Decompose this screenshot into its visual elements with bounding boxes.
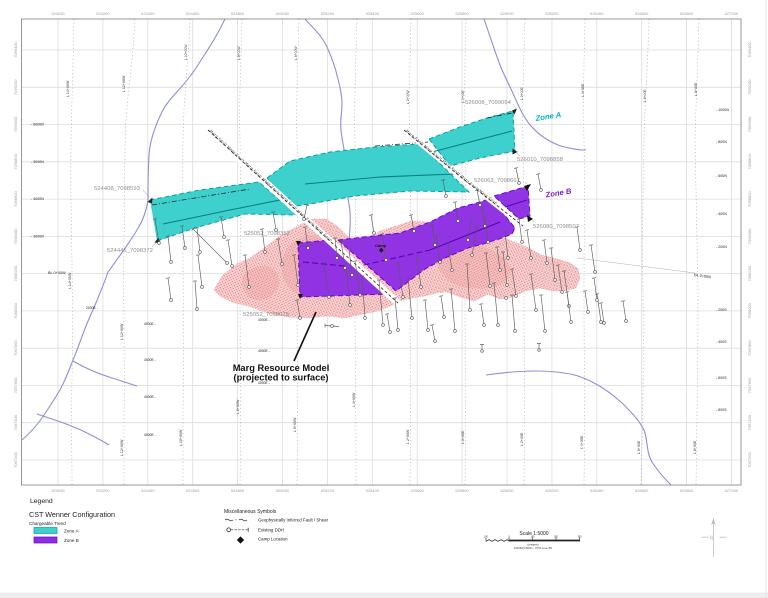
svg-text:Camp Location: Camp Location xyxy=(258,537,288,542)
svg-text:L 6+00E: L 6+00E xyxy=(643,89,647,102)
svg-text:7098000: 7098000 xyxy=(13,302,18,318)
svg-text:- 600S: - 600S xyxy=(716,376,727,380)
svg-text:525000: 525000 xyxy=(276,488,290,493)
svg-text:7097800: 7097800 xyxy=(747,340,752,356)
svg-text:526400: 526400 xyxy=(590,488,604,493)
svg-text:L 8+00E: L 8+00E xyxy=(693,440,697,454)
svg-text:526800: 526800 xyxy=(680,488,694,493)
svg-text:525600: 525600 xyxy=(411,11,425,16)
svg-text:526080_7098507: 526080_7098507 xyxy=(533,224,579,230)
svg-text:L 6+00W: L 6+00W xyxy=(294,46,298,60)
svg-text:L 0+00E: L 0+00E xyxy=(461,90,465,103)
svg-text:Geophysically Inferred Fault /: Geophysically Inferred Fault / Shear xyxy=(258,518,329,523)
svg-text:7098800: 7098800 xyxy=(13,153,18,169)
svg-text:L 8+00W: L 8+00W xyxy=(237,46,241,60)
svg-text:- 400N: - 400N xyxy=(716,212,727,216)
svg-text:524200: 524200 xyxy=(96,11,110,16)
svg-text:CST Wenner Configuration: CST Wenner Configuration xyxy=(29,510,115,519)
svg-text:4000E -: 4000E - xyxy=(144,433,156,437)
svg-text:Zone A: Zone A xyxy=(64,529,79,534)
svg-text:7097200: 7097200 xyxy=(747,451,752,467)
svg-text:L 4+00E: L 4+00E xyxy=(581,83,585,97)
svg-text:- 3000N: - 3000N xyxy=(31,234,44,238)
svg-text:7098400: 7098400 xyxy=(747,228,752,244)
svg-text:525600: 525600 xyxy=(411,488,425,493)
svg-text:7098800: 7098800 xyxy=(747,153,752,169)
svg-text:4000E -: 4000E - xyxy=(258,349,270,353)
svg-text:526008_7099064: 526008_7099064 xyxy=(465,100,512,106)
svg-text:L 0+00E: L 0+00E xyxy=(461,430,465,444)
svg-text:7098200: 7098200 xyxy=(13,265,18,281)
svg-text:L 10+00W: L 10+00W xyxy=(179,429,183,446)
svg-text:7097400: 7097400 xyxy=(13,414,18,430)
svg-text:L 2+00E: L 2+00E xyxy=(520,432,524,446)
svg-text:L 6+00W: L 6+00W xyxy=(293,417,297,432)
svg-text:7098000: 7098000 xyxy=(747,302,752,318)
svg-text:524000: 524000 xyxy=(51,11,65,16)
svg-text:- 1000N: - 1000N xyxy=(716,108,729,112)
svg-text:524600: 524600 xyxy=(186,11,200,16)
svg-text:NAD83(CSRS) - UTM zone 8N: NAD83(CSRS) - UTM zone 8N xyxy=(514,546,552,550)
svg-text:524408_7098593: 524408_7098593 xyxy=(94,186,141,192)
svg-text:L 8+00W: L 8+00W xyxy=(236,399,240,414)
svg-text:524400: 524400 xyxy=(141,488,155,493)
svg-text:- 600N: - 600N xyxy=(716,174,727,178)
svg-text:7099400: 7099400 xyxy=(747,41,752,57)
svg-text:L 12+00W: L 12+00W xyxy=(120,439,124,456)
svg-text:L 12+00W: L 12+00W xyxy=(122,75,126,92)
svg-text:526200: 526200 xyxy=(545,488,559,493)
svg-text:L 6+00E: L 6+00E xyxy=(637,440,641,454)
svg-text:4000E -: 4000E - xyxy=(144,395,156,399)
svg-text:2000E -: 2000E - xyxy=(86,306,98,310)
svg-text:7097800: 7097800 xyxy=(13,340,18,356)
svg-text:7099400: 7099400 xyxy=(13,41,18,57)
svg-text:526000: 526000 xyxy=(500,488,514,493)
svg-text:525052_7098352: 525052_7098352 xyxy=(244,231,290,237)
svg-text:526600: 526600 xyxy=(635,488,649,493)
svg-text:526010_7098858: 526010_7098858 xyxy=(517,157,564,163)
svg-text:526063_7098667: 526063_7098667 xyxy=(474,178,520,184)
svg-text:7099200: 7099200 xyxy=(747,79,752,95)
svg-text:526000: 526000 xyxy=(500,11,514,16)
svg-text:L 8+00E: L 8+00E xyxy=(694,82,698,96)
svg-text:L 2+00E: L 2+00E xyxy=(520,87,524,100)
svg-text:7099200: 7099200 xyxy=(13,79,18,95)
svg-text:524445_7098372: 524445_7098372 xyxy=(107,248,153,254)
svg-text:L 10+00W: L 10+00W xyxy=(184,44,188,60)
svg-text:Legend: Legend xyxy=(30,498,53,505)
svg-text:- 200N: - 200N xyxy=(716,245,727,249)
svg-text:L 14+00W: L 14+00W xyxy=(66,80,70,97)
svg-text:4000E -: 4000E - xyxy=(258,318,270,322)
svg-text:4000E -: 4000E - xyxy=(144,322,156,326)
svg-text:BL 0+00W: BL 0+00W xyxy=(48,271,66,275)
svg-text:525200: 525200 xyxy=(321,11,335,16)
svg-text:- 400S: - 400S xyxy=(716,340,727,344)
svg-text:525800: 525800 xyxy=(455,488,469,493)
svg-text:525000: 525000 xyxy=(276,11,290,16)
svg-text:527000: 527000 xyxy=(725,11,739,16)
svg-text:- 5000N: - 5000N xyxy=(31,160,44,164)
svg-text:7097400: 7097400 xyxy=(747,414,752,430)
svg-text:- 800N: - 800N xyxy=(716,140,727,144)
svg-text:- 200S: - 200S xyxy=(716,308,727,312)
svg-text:Camp: Camp xyxy=(375,243,387,248)
svg-text:Existing DDH: Existing DDH xyxy=(258,528,284,533)
svg-text:7097600: 7097600 xyxy=(13,377,18,393)
svg-text:7098600: 7098600 xyxy=(13,191,18,207)
svg-text:4000E -: 4000E - xyxy=(258,381,270,385)
svg-text:L 2+00W: L 2+00W xyxy=(406,90,410,104)
svg-text:526400: 526400 xyxy=(590,11,604,16)
svg-text:Marg Resource Model: Marg Resource Model xyxy=(233,363,330,373)
svg-text:Miscellaneous Symbols: Miscellaneous Symbols xyxy=(224,509,277,515)
svg-text:525400: 525400 xyxy=(366,488,380,493)
svg-text:524000: 524000 xyxy=(51,488,65,493)
svg-text:7098600: 7098600 xyxy=(747,191,752,207)
svg-text:7099000: 7099000 xyxy=(747,116,752,132)
svg-text:524200: 524200 xyxy=(96,488,110,493)
svg-text:526200: 526200 xyxy=(545,11,559,16)
svg-text:7099000: 7099000 xyxy=(13,116,18,132)
svg-text:524800: 524800 xyxy=(231,488,245,493)
svg-text:L 4+00W: L 4+00W xyxy=(352,392,356,407)
svg-text:525800: 525800 xyxy=(455,11,469,16)
svg-text:527000: 527000 xyxy=(725,488,739,493)
svg-text:7097600: 7097600 xyxy=(747,377,752,393)
svg-text:- 4000N: - 4000N xyxy=(31,197,44,201)
svg-text:524800: 524800 xyxy=(231,11,245,16)
svg-text:7098400: 7098400 xyxy=(13,228,18,244)
svg-text:L 2+00W: L 2+00W xyxy=(406,429,410,444)
svg-text:L 4+00E: L 4+00E xyxy=(580,435,584,449)
svg-text:526600: 526600 xyxy=(635,11,649,16)
svg-text:526800: 526800 xyxy=(680,11,694,16)
svg-text:- 6000N: - 6000N xyxy=(31,123,44,127)
svg-text:L 14+00W: L 14+00W xyxy=(68,272,72,289)
svg-text:(projected to surface): (projected to surface) xyxy=(233,373,328,383)
svg-text:525400: 525400 xyxy=(366,11,380,16)
svg-text:7098200: 7098200 xyxy=(747,265,752,281)
svg-text:L 12+00W: L 12+00W xyxy=(120,323,124,340)
svg-text:Zone B: Zone B xyxy=(64,538,79,543)
svg-text:N: N xyxy=(710,536,714,542)
svg-text:- 800S: - 800S xyxy=(716,408,727,412)
svg-text:524400: 524400 xyxy=(141,11,155,16)
svg-text:Chargeable Trend: Chargeable Trend xyxy=(29,521,66,526)
svg-text:4000E -: 4000E - xyxy=(144,358,156,362)
svg-text:7097200: 7097200 xyxy=(13,451,18,467)
svg-text:525200: 525200 xyxy=(321,488,335,493)
svg-text:524600: 524600 xyxy=(186,488,200,493)
